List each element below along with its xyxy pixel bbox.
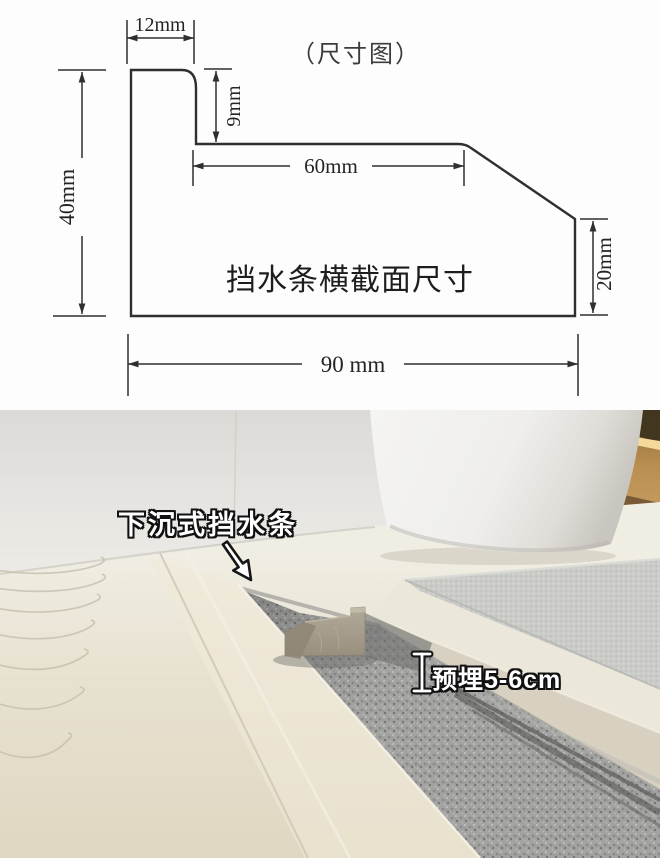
embed-depth-label: 预埋5-6cm <box>432 660 561 696</box>
dim-step-height: 9mm <box>204 69 245 142</box>
installation-photo: 下沉式挡水条 预埋5-6cm <box>0 410 660 858</box>
dim-upper-width: 60mm <box>193 150 464 186</box>
dim-right-height: 20mm <box>580 219 616 315</box>
section-label: 挡水条横截面尺寸 <box>226 264 474 297</box>
dim-step-height-text: 9mm <box>223 85 245 127</box>
infographic: （尺寸图） 挡水条横截面尺寸 12mm 9mm 60mm <box>0 0 660 858</box>
dim-total-width-text: 90 mm <box>321 352 386 377</box>
dim-top-width: 12mm <box>127 14 194 64</box>
callout-label: 下沉式挡水条 <box>118 503 298 542</box>
dim-top-width-text: 12mm <box>134 14 186 36</box>
dim-left-height: 40mm <box>53 70 106 316</box>
dim-total-width: 90 mm <box>128 334 578 396</box>
dim-left-height-text: 40mm <box>54 169 79 225</box>
dim-upper-width-text: 60mm <box>304 154 358 178</box>
diagram-title: （尺寸图） <box>291 41 421 68</box>
dimension-diagram-svg: （尺寸图） 挡水条横截面尺寸 12mm 9mm 60mm <box>0 0 660 410</box>
dimension-diagram: （尺寸图） 挡水条横截面尺寸 12mm 9mm 60mm <box>0 0 660 410</box>
photo-scene-svg <box>0 410 660 858</box>
dim-right-height-text: 20mm <box>592 237 616 291</box>
